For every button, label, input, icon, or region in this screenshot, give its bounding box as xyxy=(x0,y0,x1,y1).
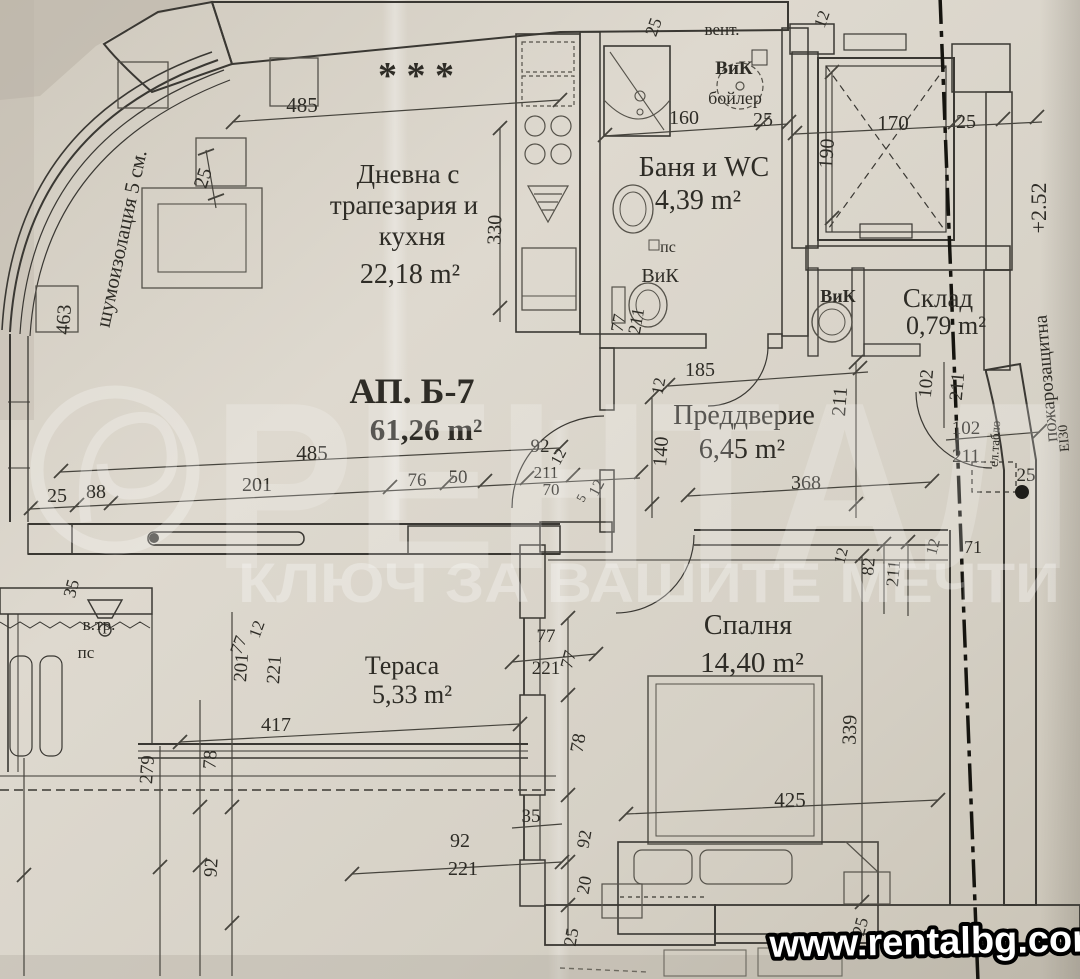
plan-label: Склад xyxy=(903,283,974,313)
watermark-tagline: КЛЮЧ ЗА ВАШИТЕ МЕЧТИ xyxy=(238,551,1060,614)
plan-label: 201 xyxy=(230,653,253,683)
floor-plan-photo: Дневна страпезария икухня22,18 m²Баня и … xyxy=(0,0,1080,979)
plan-label: 92 xyxy=(450,830,470,852)
plan-label: 77 xyxy=(537,626,556,647)
plan-label: 92 xyxy=(573,828,596,849)
plan-label: пс xyxy=(78,643,95,662)
plan-label: 5,33 m² xyxy=(372,680,452,709)
plan-label: 92 xyxy=(200,857,222,877)
plan-label: 78 xyxy=(567,732,591,754)
plan-label: 160 xyxy=(669,107,699,129)
plan-label: 221 xyxy=(532,658,561,679)
plan-label: 25 xyxy=(560,926,583,947)
plan-label: ВиК xyxy=(715,58,753,79)
plan-label: 417 xyxy=(261,714,291,736)
floor-plan-svg: Дневна страпезария икухня22,18 m²Баня и … xyxy=(0,0,1080,979)
plan-label: 78 xyxy=(199,749,221,769)
plan-label: 485 xyxy=(286,93,318,117)
plan-label: 25 xyxy=(753,109,773,131)
plan-label: вент. xyxy=(705,20,740,39)
plan-label: в.тр. xyxy=(83,615,116,634)
plan-label: 0,79 m² xyxy=(906,311,986,340)
plan-label: 170 xyxy=(877,111,909,135)
plan-label: Тераса xyxy=(365,651,440,680)
plan-label: 330 xyxy=(483,214,506,245)
plan-label: пс xyxy=(660,239,676,256)
footer-url: www.rentalbg.com xyxy=(768,918,1080,966)
plan-label: бойлер xyxy=(708,88,762,108)
plan-label: 339 xyxy=(838,714,861,745)
plan-label: Дневна с xyxy=(357,159,460,189)
plan-label: ВиК xyxy=(641,265,679,287)
plan-label: 190 xyxy=(815,138,839,169)
plan-label: 35 xyxy=(522,806,541,827)
plan-label: 25 xyxy=(956,111,976,133)
plan-label: 221 xyxy=(448,858,478,880)
plan-label: 4,39 m² xyxy=(655,185,741,216)
plan-label: * * * xyxy=(378,55,454,97)
plan-label: 279 xyxy=(136,755,159,785)
plan-label: Баня и WC xyxy=(639,152,769,183)
plan-label: 221 xyxy=(263,655,286,685)
plan-label: 20 xyxy=(573,874,596,895)
plan-label: +2.52 xyxy=(1026,183,1051,234)
plan-label: трапезария и xyxy=(330,190,478,220)
plan-label: 22,18 m² xyxy=(360,259,460,290)
plan-label: ВиК xyxy=(820,286,855,306)
plan-label: 425 xyxy=(774,788,806,812)
plan-label: 14,40 m² xyxy=(700,647,804,679)
plan-label: 463 xyxy=(52,304,76,335)
plan-label: кухня xyxy=(379,221,446,251)
